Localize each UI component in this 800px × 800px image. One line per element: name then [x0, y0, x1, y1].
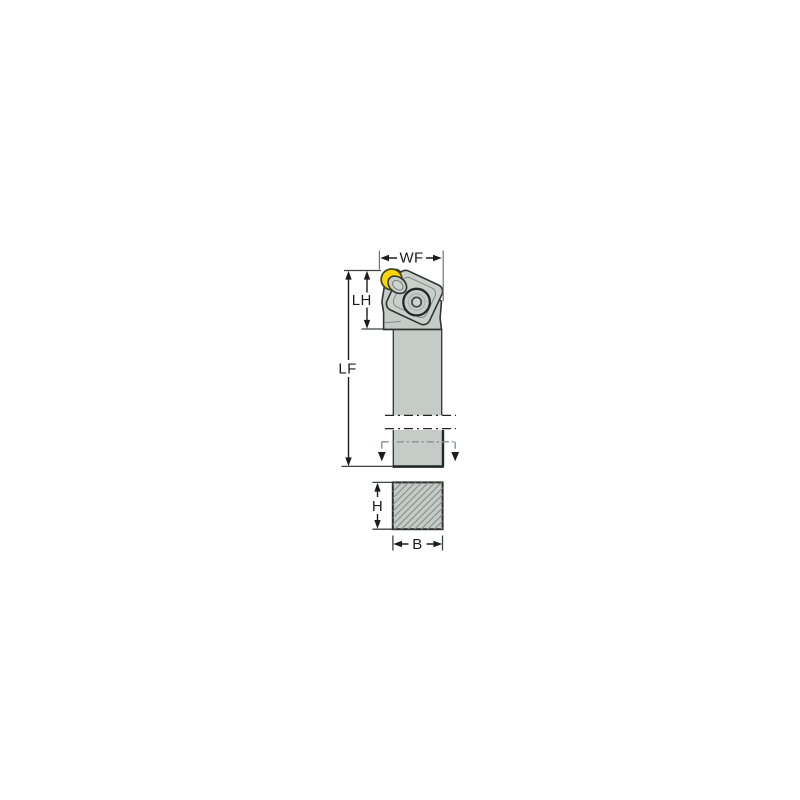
h-dimension: H	[372, 483, 383, 529]
tool-body	[378, 268, 459, 467]
cross-section-hatch	[393, 482, 443, 529]
shank-cross-section	[393, 482, 443, 529]
b-arrow-left	[393, 541, 402, 547]
h-label: H	[372, 498, 383, 515]
lf-arrow-top	[345, 271, 351, 280]
h-arrow-bottom	[374, 520, 380, 529]
cut-plane-arrow-right	[451, 452, 459, 461]
lh-dimension: LH	[352, 271, 372, 329]
wf-arrow-right	[433, 255, 442, 261]
lf-label: LF	[338, 361, 356, 378]
cut-plane-arrow-left	[378, 452, 386, 461]
lh-arrow-top	[364, 271, 370, 280]
wf-label: WF	[399, 250, 423, 267]
wf-arrow-left	[380, 255, 389, 261]
toolholder-diagram-canvas: WF LF LH H B	[0, 0, 800, 800]
b-arrow-right	[433, 541, 442, 547]
lf-arrow-bottom	[345, 457, 351, 466]
wf-dimension: WF	[380, 250, 442, 267]
clamp-screw-hole	[412, 297, 421, 306]
shank-lower-segment	[393, 430, 443, 467]
shank-upper-segment	[393, 330, 441, 416]
b-label: B	[412, 536, 422, 553]
lh-label: LH	[352, 292, 372, 309]
toolholder-diagram: WF LF LH H B	[0, 0, 800, 800]
b-dimension: B	[393, 536, 442, 553]
lh-arrow-bottom	[364, 320, 370, 329]
h-arrow-top	[374, 483, 380, 492]
